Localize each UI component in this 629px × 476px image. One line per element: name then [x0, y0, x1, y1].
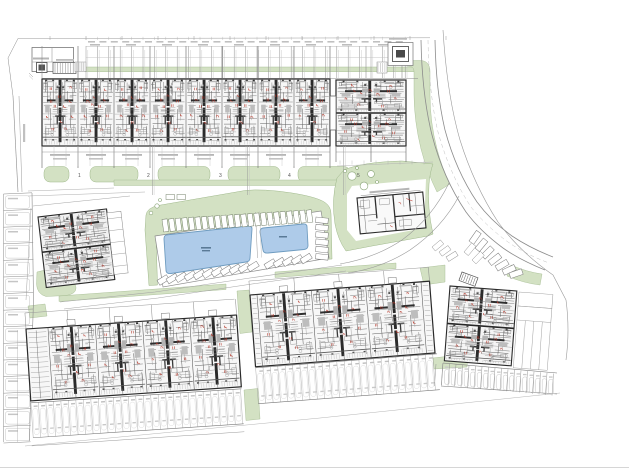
- svg-text:5: 5: [357, 173, 360, 179]
- svg-text:2: 2: [147, 173, 150, 179]
- svg-text:4: 4: [288, 173, 291, 179]
- svg-text:3: 3: [219, 173, 222, 179]
- svg-text:1: 1: [78, 173, 81, 179]
